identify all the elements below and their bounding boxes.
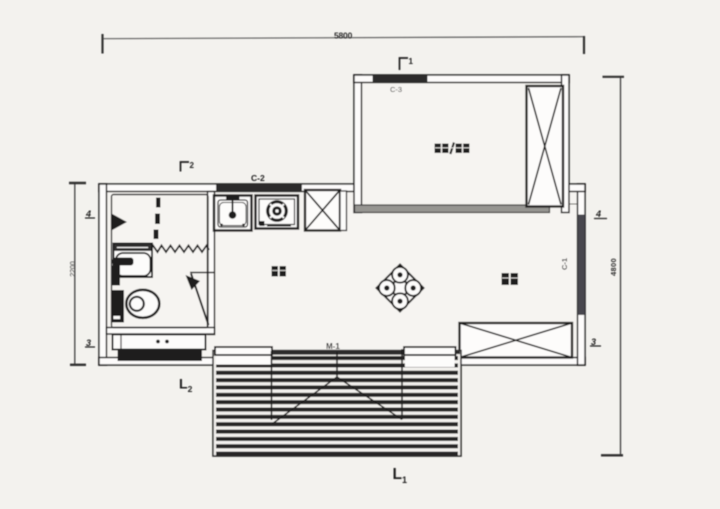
- svg-text:1: 1: [409, 57, 414, 66]
- svg-text:M-1: M-1: [326, 342, 340, 351]
- svg-text:5800: 5800: [334, 31, 353, 41]
- svg-text:4800: 4800: [609, 258, 618, 276]
- svg-text:C-3: C-3: [390, 85, 402, 94]
- svg-text:C-2: C-2: [251, 173, 265, 183]
- svg-text:C-1: C-1: [560, 258, 569, 270]
- svg-text:2: 2: [190, 161, 195, 170]
- svg-text:4: 4: [595, 209, 601, 219]
- svg-text:2200: 2200: [70, 261, 77, 277]
